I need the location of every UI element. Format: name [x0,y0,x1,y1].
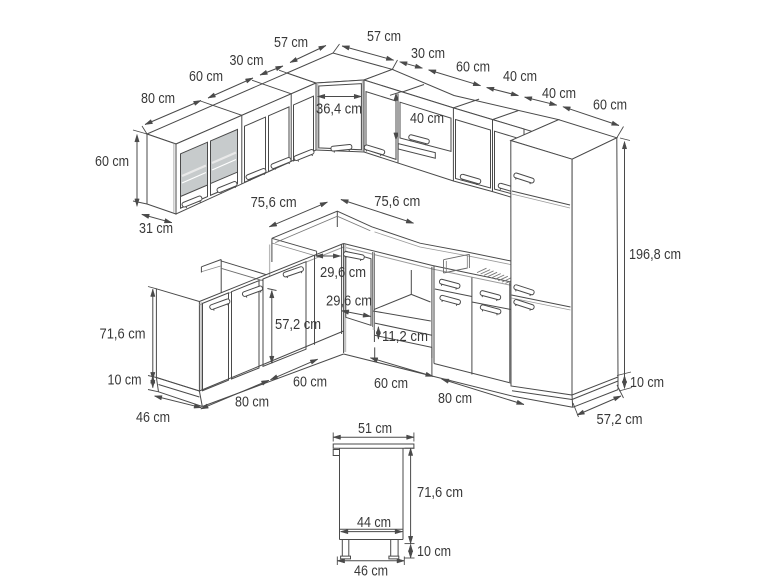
svg-text:36,4 cm: 36,4 cm [316,101,362,118]
svg-text:10 cm: 10 cm [417,543,451,560]
svg-text:80 cm: 80 cm [141,90,175,107]
svg-text:57 cm: 57 cm [367,28,401,45]
svg-text:60 cm: 60 cm [293,374,327,391]
svg-text:60 cm: 60 cm [95,153,129,170]
svg-text:57,2 cm: 57,2 cm [597,411,643,428]
svg-text:80 cm: 80 cm [235,394,269,411]
svg-text:46 cm: 46 cm [136,409,170,426]
svg-text:29,6 cm: 29,6 cm [320,264,366,281]
svg-text:60 cm: 60 cm [593,97,627,114]
svg-text:46 cm: 46 cm [354,563,388,578]
svg-text:30 cm: 30 cm [230,52,264,69]
svg-text:40 cm: 40 cm [503,68,537,85]
svg-text:30 cm: 30 cm [411,45,445,62]
svg-text:71,6 cm: 71,6 cm [100,326,146,343]
svg-text:60 cm: 60 cm [456,59,490,76]
svg-text:71,6 cm: 71,6 cm [417,484,463,501]
svg-text:29,6 cm: 29,6 cm [326,293,372,310]
svg-text:75,6 cm: 75,6 cm [251,194,297,211]
svg-text:196,8 cm: 196,8 cm [629,246,681,263]
svg-text:40 cm: 40 cm [410,110,444,127]
svg-text:57 cm: 57 cm [274,34,308,51]
svg-text:80 cm: 80 cm [438,390,472,407]
svg-text:60 cm: 60 cm [374,375,408,392]
svg-text:10 cm: 10 cm [630,374,664,391]
svg-text:44 cm: 44 cm [357,514,391,531]
svg-text:51 cm: 51 cm [358,420,392,437]
svg-text:10 cm: 10 cm [108,372,142,389]
svg-text:57,2 cm: 57,2 cm [275,316,321,333]
svg-text:40 cm: 40 cm [542,85,576,102]
svg-text:11,2 cm: 11,2 cm [382,328,428,345]
svg-text:75,6 cm: 75,6 cm [374,193,420,210]
svg-text:31 cm: 31 cm [139,220,173,237]
svg-text:60 cm: 60 cm [189,68,223,85]
